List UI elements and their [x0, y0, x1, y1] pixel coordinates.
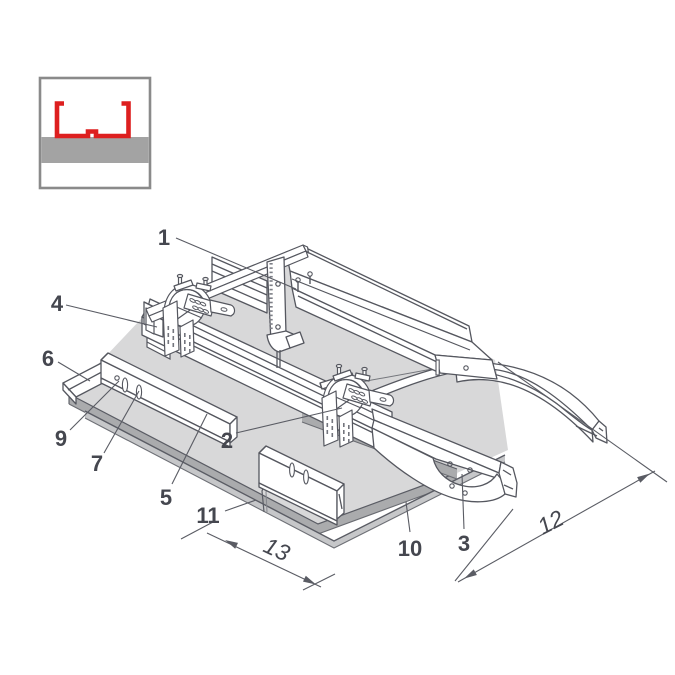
- svg-text:1: 1: [158, 225, 170, 250]
- svg-text:3: 3: [458, 531, 470, 556]
- svg-text:10: 10: [398, 536, 422, 561]
- svg-text:5: 5: [160, 485, 172, 510]
- svg-text:7: 7: [91, 451, 103, 476]
- svg-text:4: 4: [51, 291, 64, 316]
- svg-text:9: 9: [55, 426, 67, 451]
- svg-text:2: 2: [221, 428, 233, 453]
- svg-text:6: 6: [42, 346, 54, 371]
- svg-text:11: 11: [196, 503, 219, 528]
